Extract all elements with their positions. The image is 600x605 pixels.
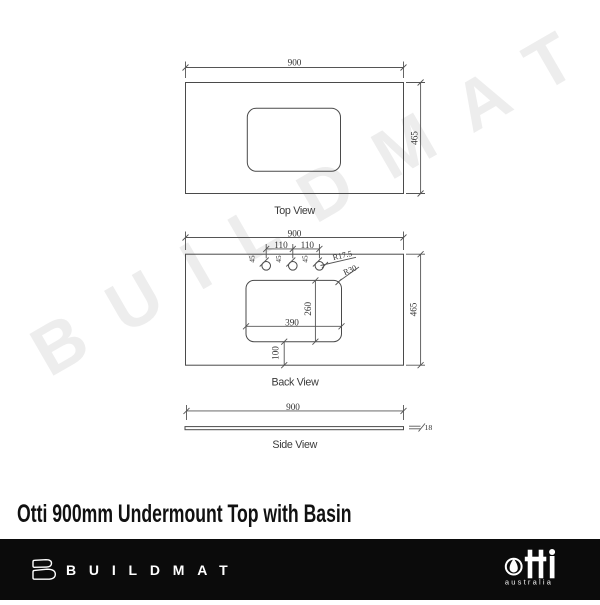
svg-text:900: 900	[286, 402, 300, 412]
svg-text:110: 110	[274, 240, 288, 250]
svg-text:100: 100	[271, 346, 281, 360]
svg-text:18: 18	[425, 423, 433, 432]
svg-text:australia: australia	[505, 578, 553, 587]
svg-text:Back View: Back View	[271, 376, 319, 388]
svg-text:900: 900	[288, 57, 302, 67]
svg-text:BUILDMAT: BUILDMAT	[18, 0, 600, 391]
svg-text:260: 260	[303, 302, 313, 316]
svg-text:R30: R30	[342, 263, 358, 277]
svg-text:465: 465	[410, 131, 420, 145]
svg-text:Top View: Top View	[274, 205, 315, 217]
svg-text:900: 900	[288, 228, 302, 238]
svg-text:390: 390	[285, 317, 299, 327]
svg-text:110: 110	[301, 240, 315, 250]
svg-text:Side View: Side View	[272, 439, 317, 451]
svg-text:45: 45	[302, 255, 310, 263]
svg-text:45: 45	[249, 255, 257, 263]
svg-text:BUILDMAT: BUILDMAT	[66, 562, 240, 578]
svg-text:45: 45	[275, 255, 283, 263]
svg-text:465: 465	[409, 302, 419, 316]
